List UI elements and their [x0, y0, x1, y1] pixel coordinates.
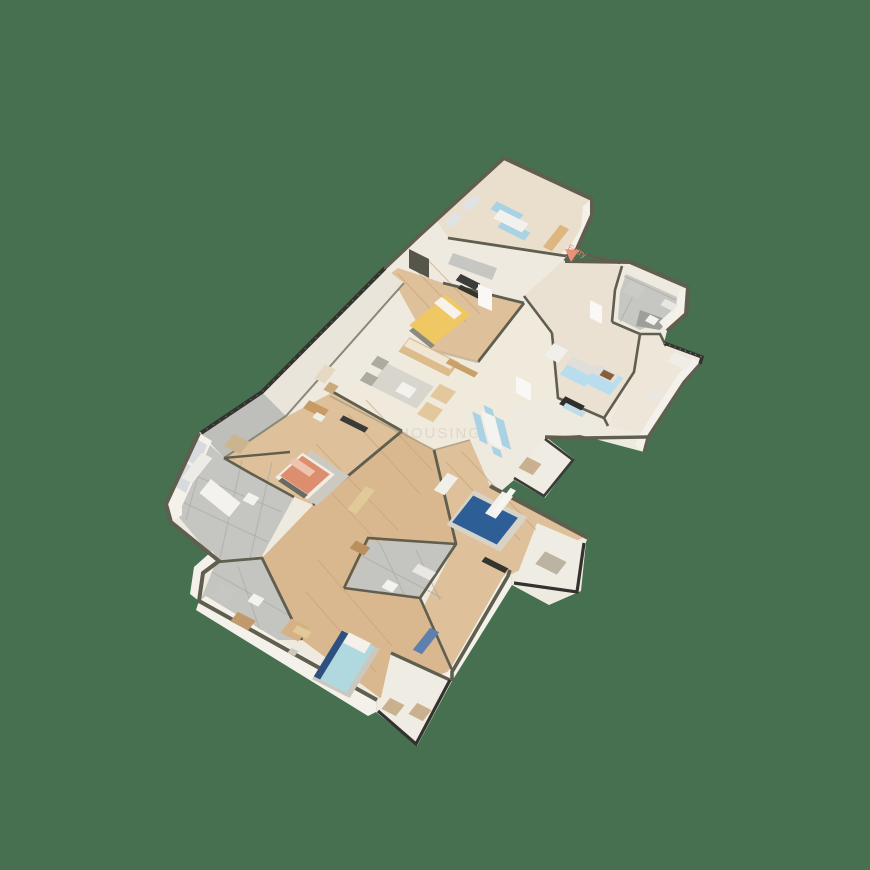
- svg-text:HOUSING: HOUSING: [398, 425, 482, 442]
